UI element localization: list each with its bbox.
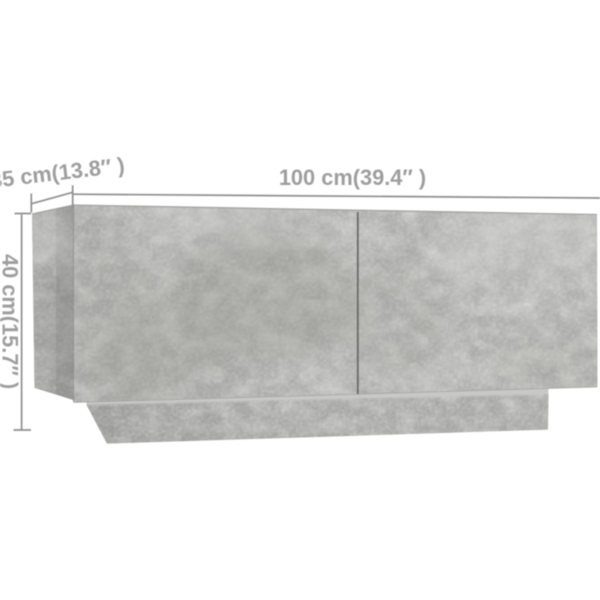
svg-text:40 cm(15.7″ ): 40 cm(15.7″ ) bbox=[0, 254, 23, 389]
svg-text:100 cm(39.4″ ): 100 cm(39.4″ ) bbox=[279, 165, 426, 190]
